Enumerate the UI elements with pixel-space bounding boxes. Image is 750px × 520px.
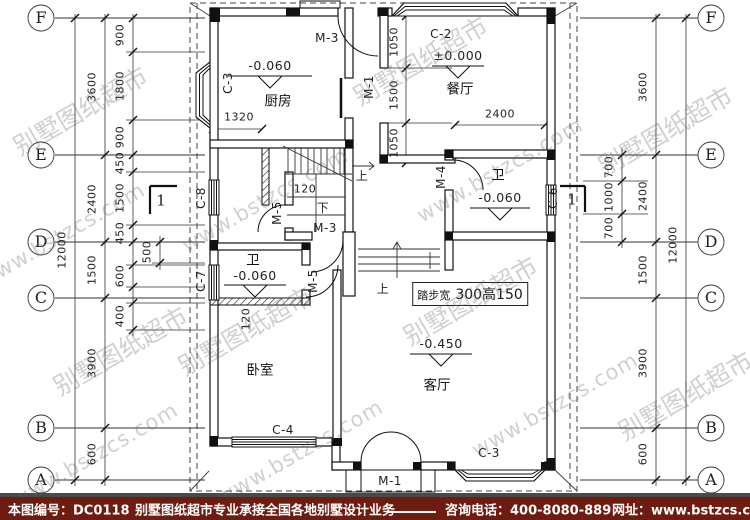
phone-text: 咨询电话：400-8080-889 [445,499,611,518]
door-label-m3: M-3 [313,222,337,234]
dim-label: 1800 [115,71,126,101]
grid-label-right-e: E [705,147,717,163]
dimension-lines [75,14,686,486]
dim-label: 12000 [668,226,679,264]
dim-label: 600 [638,443,649,466]
dim-label: 900 [115,24,126,47]
grid-label-left-b: B [35,420,47,436]
sheet-number: 本图编号：DC0118 [8,499,130,518]
door-label-m3: M-3 [315,32,339,44]
stair-down-label: 下 [317,202,330,214]
grid-label-right-d: D [705,234,718,250]
dim-label: 600 [87,443,98,466]
walls [210,8,555,470]
hatched-wall [210,298,310,305]
grid-label-right-f: F [705,10,716,26]
stair-up-label: 上 [356,170,369,182]
dim-label: 3900 [87,348,98,378]
section-mark-label: 1 [567,193,577,208]
dim-label: 3600 [638,72,649,102]
stair-up-label: 上 [377,283,390,295]
door-label-m1: M-1 [378,475,402,487]
dim-label: 1500 [389,80,400,110]
dim-label: 2400 [485,109,515,120]
door-label-m5: M-5 [307,269,319,293]
room-label-living: 客厅 [424,379,451,393]
grid-label-right-b: B [705,420,717,436]
dim-label: 1500 [638,255,649,285]
blank-line [388,511,436,513]
grid-label-left-a: A [35,472,47,488]
room-label-dining: 餐厅 [447,83,474,97]
room-label-kitchen: 厨房 [265,95,292,109]
dim-label: 2400 [638,181,649,211]
dim-label: 120 [241,308,252,331]
window-label-c7: C-7 [195,270,207,292]
window-label-c2: C-2 [430,28,452,40]
footer-bar: 本图编号：DC0118 别墅图纸超市专业承接全国各地别墅设计业务 咨询电话：40… [0,497,750,520]
floorplan-sheet: 别墅图纸超市 www.bstzcs.com 别墅图纸超市 www.bstzcs.… [0,0,750,520]
grid-label-right-a: A [705,472,717,488]
room-label-bath-lower: 卫 [246,254,260,268]
window-label-c8: C-8 [195,187,207,209]
window-label-c4: C-4 [272,424,294,436]
dim-label: 700 [604,156,615,179]
dim-label: 1000 [604,182,615,212]
dim-label: 600 [115,265,126,288]
dim-label: 450 [115,222,126,245]
grid-label-left-c: C [35,290,47,306]
dim-label: 1320 [224,112,254,123]
dim-label: 1500 [115,183,126,213]
window-label-c6: C-6 [547,187,559,209]
service-text: 别墅图纸超市专业承接全国各地别墅设计业务 [135,499,395,518]
dim-label: 450 [115,152,126,175]
elevation-bath-upper: -0.060 [478,192,521,205]
dim-label: 2400 [87,184,98,214]
section-mark-label: 1 [156,194,166,209]
dim-label: 400 [115,305,126,328]
grid-label-left-f: F [35,10,46,26]
door-label-m4: M-4 [435,165,447,189]
grid-label-right-c: C [705,290,717,306]
elevation-bath-lower: -0.060 [233,270,276,283]
room-label-bath-upper: 卫 [491,169,505,183]
window-label-c3: C-3 [222,72,234,94]
stair-note-value: 300高150 [455,287,522,303]
dim-label: 1050 [389,128,400,158]
grid-label-left-e: E [35,147,47,163]
door-label-m1: M-1 [363,75,375,99]
room-label-bedroom: 卧室 [247,364,274,378]
dim-label: 3600 [87,72,98,102]
dim-label: 700 [604,217,615,240]
stair-note-prefix: 踏步宽 [417,289,450,302]
dim-label: 3900 [638,348,649,378]
stair-note: 踏步宽 300高150 [412,282,528,306]
dim-label: 1500 [87,255,98,285]
door-label-m5: M-5 [271,201,283,225]
dim-label: 1050 [389,27,400,57]
elevation-kitchen: -0.060 [248,60,291,73]
hatched-wall [262,148,269,205]
website-text: 网址：www.bstzcs.com [612,499,750,518]
elevation-dining: ±0.000 [433,50,482,63]
dim-label: 120 [294,184,317,195]
grid-label-left-d: D [35,234,48,250]
dimension-ticks [71,12,690,484]
window-label-c3: C-3 [478,447,500,459]
dim-label: 12000 [57,231,68,269]
dim-label: 500 [142,241,153,264]
elevation-living: -0.450 [419,338,462,351]
dim-label: 900 [115,126,126,149]
